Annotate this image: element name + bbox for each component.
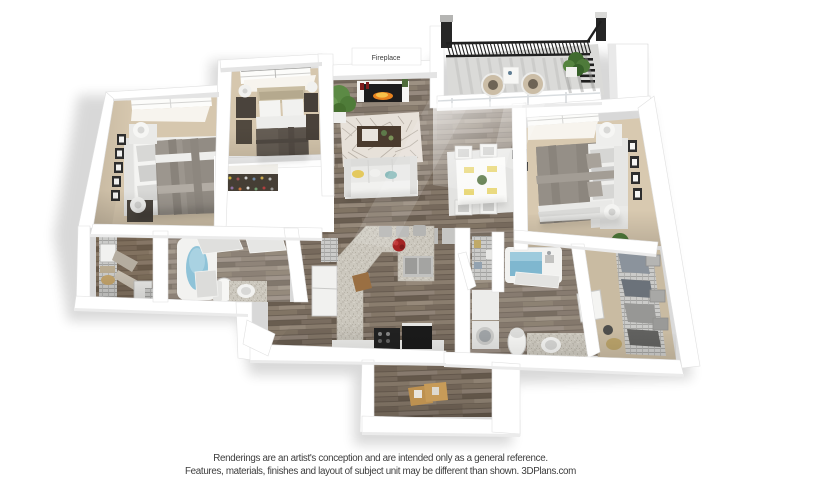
svg-text:Fireplace: Fireplace	[372, 55, 401, 62]
